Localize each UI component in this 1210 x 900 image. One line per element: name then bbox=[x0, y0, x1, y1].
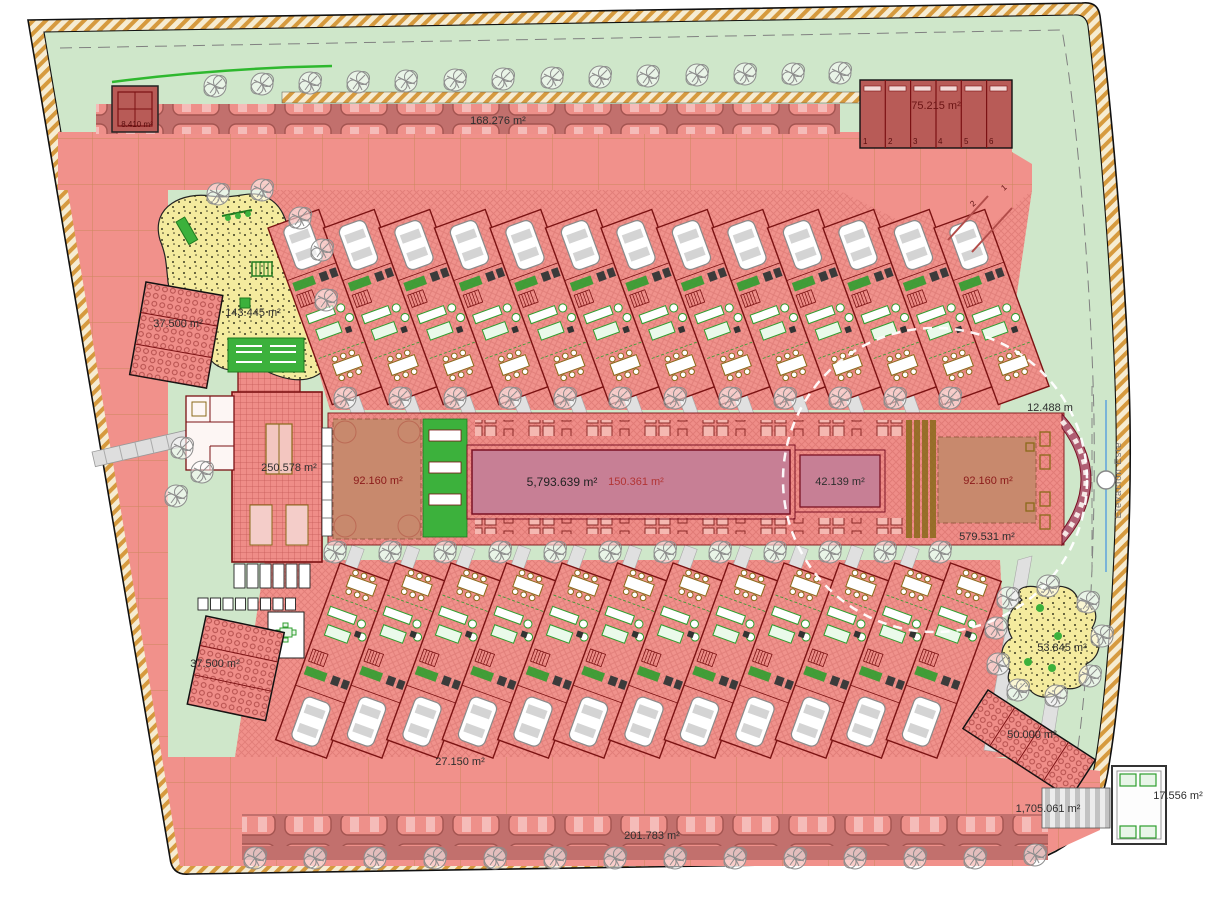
garage-no-4: 4 bbox=[938, 137, 943, 146]
label-east-width: 12.488 m bbox=[1027, 402, 1073, 414]
label-garage-block: 75.215 m² bbox=[911, 100, 961, 112]
label-carport-southeast: 50.000 m² bbox=[1007, 729, 1057, 741]
label-clubhouse: 250.578 m² bbox=[261, 462, 317, 474]
label-pool-walkway: 150.361 m² bbox=[608, 476, 664, 488]
garage-no-6: 6 bbox=[989, 137, 994, 146]
label-bottom-parking: 201.783 m² bbox=[624, 830, 680, 842]
label-ring-road: 1,705.061 m² bbox=[1016, 803, 1081, 815]
site-plan-svg: 8.410 m² 75.215 m² 1 2 3 4 5 6 2 1 168.2… bbox=[0, 0, 1210, 900]
label-playground-west: 143.445 m² bbox=[225, 307, 281, 319]
label-kids-pool: 42.139 m² bbox=[815, 476, 865, 488]
label-storage-southwest: 37.500 m² bbox=[190, 658, 240, 670]
label-deck-south: 579.531 m² bbox=[959, 531, 1015, 543]
label-elevation-este: Elevacion Este bbox=[1113, 442, 1124, 519]
label-gatehouse-east: 17.556 m² bbox=[1153, 790, 1203, 802]
upper-house-row bbox=[268, 210, 1049, 405]
site-plan-drawing: 8.410 m² 75.215 m² 1 2 3 4 5 6 2 1 168.2… bbox=[0, 0, 1210, 900]
storage-northwest bbox=[130, 282, 223, 388]
label-gate-booth: 8.410 m² bbox=[121, 120, 153, 129]
garage-no-5: 5 bbox=[964, 137, 969, 146]
garage-no-2: 2 bbox=[888, 137, 893, 146]
label-deck-west: 92.160 m² bbox=[353, 475, 403, 487]
label-top-parking: 168.276 m² bbox=[470, 115, 526, 127]
lower-house-row bbox=[276, 563, 1002, 758]
label-deck-east: 92.160 m² bbox=[963, 475, 1013, 487]
garage-no-1: 1 bbox=[863, 137, 868, 146]
label-playground-east: 53.845 m² bbox=[1037, 642, 1087, 654]
garage-no-3: 3 bbox=[913, 137, 918, 146]
label-storage-northwest: 37.500 m² bbox=[153, 318, 203, 330]
label-house-row-south: 27.150 m² bbox=[435, 756, 485, 768]
label-main-pool: 5,793.639 m² bbox=[527, 475, 598, 489]
green-lounger-strip bbox=[423, 419, 467, 537]
